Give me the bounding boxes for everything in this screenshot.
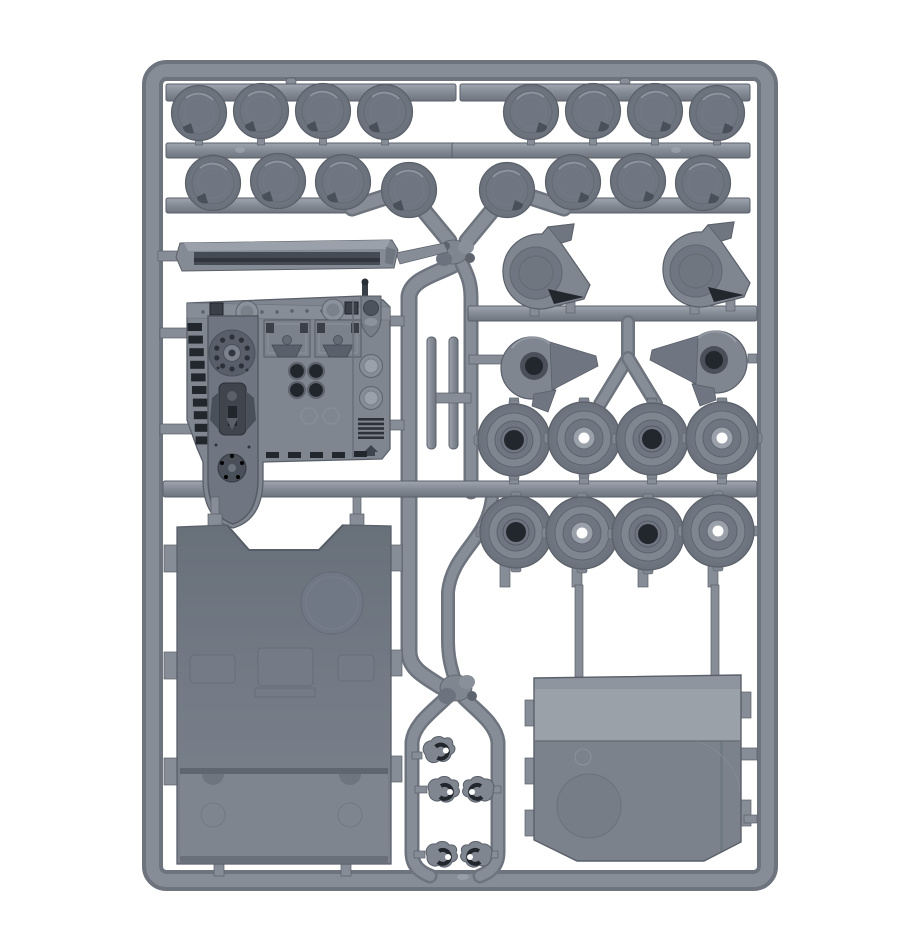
towing-hook bbox=[428, 776, 459, 802]
towing-hook bbox=[426, 841, 457, 867]
top-socket bbox=[345, 302, 358, 314]
wheel-hub-rows bbox=[474, 398, 762, 677]
wheel-hub-open bbox=[682, 398, 762, 478]
embossed-circle bbox=[301, 572, 363, 634]
large-hull-panel bbox=[164, 497, 402, 876]
top-socket bbox=[210, 303, 223, 315]
hatch-square bbox=[315, 320, 361, 357]
wheel-hub-open bbox=[678, 491, 758, 571]
lower-door-strip bbox=[180, 774, 388, 858]
wheel-hub-solid bbox=[608, 494, 688, 574]
edge-tab bbox=[164, 758, 178, 785]
embossed-plate bbox=[258, 648, 313, 686]
wheel-hub-solid bbox=[612, 399, 692, 479]
drive-housing bbox=[650, 331, 747, 406]
gate-nub bbox=[457, 874, 469, 880]
hatch-square bbox=[264, 320, 310, 357]
towing-hook bbox=[421, 733, 458, 765]
embossed-plate bbox=[190, 655, 235, 683]
panel-seam bbox=[180, 768, 388, 774]
ornate-door bbox=[208, 316, 258, 524]
towing-hooks bbox=[412, 733, 501, 867]
panel-pin bbox=[711, 585, 719, 677]
panel-pin bbox=[575, 585, 583, 677]
exhaust-housing bbox=[663, 222, 750, 314]
edge-tab bbox=[741, 692, 751, 718]
rear-hatch-panel bbox=[525, 675, 757, 866]
wheel-hub-solid bbox=[474, 400, 554, 480]
fender-runner bbox=[468, 306, 757, 321]
antenna-rod bbox=[427, 337, 436, 449]
edge-tab bbox=[164, 652, 178, 679]
hatch-cap-cluster-left bbox=[166, 84, 464, 242]
towing-hook bbox=[461, 841, 492, 867]
embossed-plate bbox=[338, 655, 374, 681]
sprue-photo bbox=[0, 0, 918, 948]
edge-tab bbox=[164, 545, 178, 572]
exhaust-housing bbox=[503, 224, 590, 316]
hatch-cap-cluster-right bbox=[452, 84, 750, 242]
track-guard-rail bbox=[158, 240, 448, 271]
embossed-circle bbox=[557, 774, 621, 838]
sprue-gate-junction-bottom bbox=[438, 675, 477, 704]
towing-hook bbox=[463, 776, 494, 802]
